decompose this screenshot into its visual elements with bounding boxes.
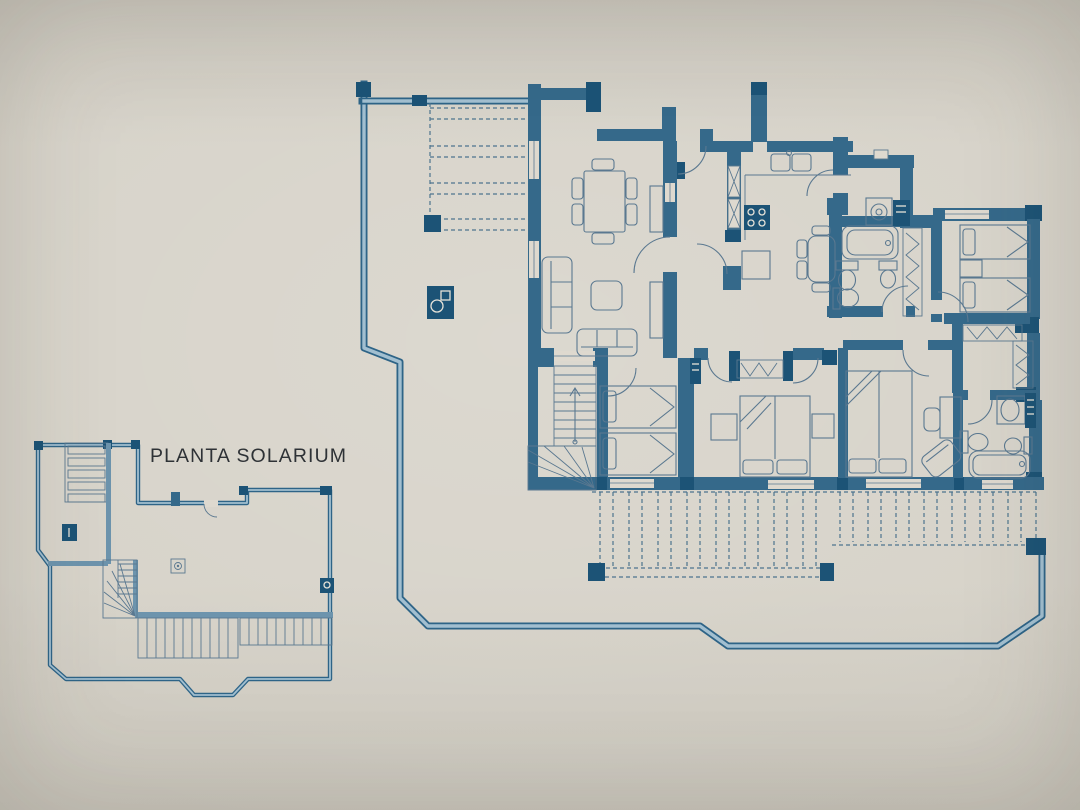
wardrobe-2: [963, 325, 1022, 341]
pergola-post: [588, 563, 605, 581]
chimney: [62, 524, 77, 541]
stair-direction-arrow: [570, 388, 580, 444]
bathroom-cabinet: [1025, 393, 1036, 428]
dining-chairs: [572, 159, 637, 244]
living-dining-room: [542, 159, 663, 356]
vent-clip: [874, 150, 888, 159]
pergola-joists-south: [588, 492, 1046, 581]
walls: [528, 82, 1044, 490]
door-arc: [882, 286, 908, 312]
bathroom-1: [833, 226, 908, 312]
dryer: [893, 200, 910, 226]
bathtub: [842, 226, 898, 259]
stairs-solarium: [103, 560, 137, 618]
desk-chair: [924, 408, 940, 431]
door-arc: [608, 368, 636, 396]
single-bed: [960, 278, 1030, 312]
single-bed: [600, 386, 676, 428]
hall-cabinet: [690, 358, 701, 384]
double-bed: [740, 396, 810, 477]
coffee-table: [591, 281, 622, 310]
pergola-slats-solarium: [138, 618, 332, 658]
nightstand: [812, 414, 834, 438]
door-arc: [807, 170, 833, 196]
pergola-post: [1026, 538, 1046, 555]
kitchen-sink: [771, 151, 811, 171]
toilet: [960, 431, 988, 453]
blueprint-photo: PLANTA SOLARIUM: [0, 0, 1080, 810]
plan-title: PLANTA SOLARIUM: [150, 445, 347, 467]
fridge: [742, 251, 770, 279]
sideboard-2: [650, 282, 663, 338]
bathroom-2: [960, 393, 1036, 478]
pergola-post: [820, 563, 834, 581]
stairs-main: [528, 366, 596, 490]
roof-slats: [65, 443, 108, 502]
door-arc: [903, 350, 929, 376]
stove: [744, 205, 770, 230]
pergola-post: [424, 215, 441, 232]
double-bed: [846, 371, 912, 477]
solarium-walls: [48, 443, 333, 618]
bathtub: [969, 451, 1030, 478]
barbecue-icon: [427, 286, 454, 319]
sideboard: [650, 186, 663, 232]
kitchen: [697, 151, 851, 292]
bedroom-1: [938, 225, 1030, 322]
appliance-column: [728, 166, 740, 228]
door-arc: [708, 358, 732, 382]
door-arc: [697, 244, 727, 274]
skylight-table: [171, 559, 185, 573]
pergola-joists-north: [424, 103, 531, 232]
single-bed: [600, 433, 676, 475]
drain: [320, 578, 334, 593]
sofa: [542, 257, 572, 333]
main-plan: [356, 82, 1046, 646]
floor-plan-drawing: PLANTA SOLARIUM: [0, 0, 1080, 810]
bedroom-3: [708, 358, 834, 477]
door-arc: [793, 358, 818, 383]
bidet: [879, 261, 897, 288]
wardrobe-4: [737, 360, 783, 378]
dining-table: [584, 171, 625, 232]
door-arc: [968, 400, 992, 424]
wardrobe-1: [903, 228, 922, 316]
single-bed: [960, 225, 1030, 259]
bedroom-4: [846, 350, 963, 479]
solarium-plan: [34, 440, 334, 695]
door-arc: [634, 237, 670, 273]
nightstand: [711, 414, 737, 440]
bedroom-2: [600, 368, 676, 475]
nightstand: [960, 260, 982, 277]
